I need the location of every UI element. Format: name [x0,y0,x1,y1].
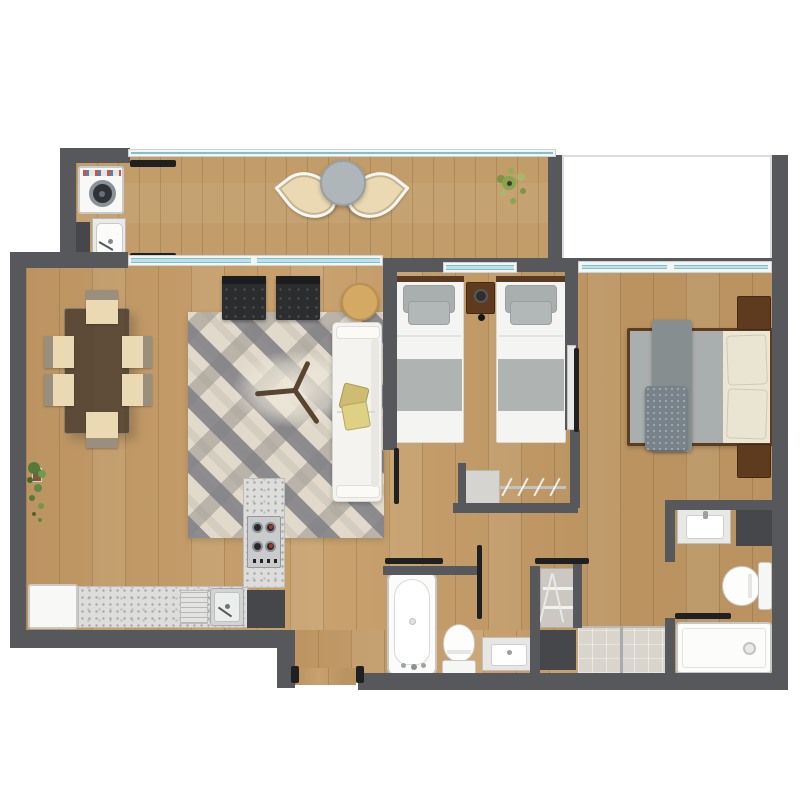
coffee-table [293,388,297,392]
bathroom-door-track [477,545,482,619]
dining-chair [86,290,118,324]
bedroom1-door-track [394,448,399,504]
bed-pillow [726,334,768,385]
textured-throw [645,386,687,450]
shower-tray [676,622,772,674]
wall-ensuite-top [665,500,772,510]
closet-slider-track [535,558,589,564]
shower-door-track [675,613,731,619]
linen-closet [540,568,576,628]
upper-terrace [562,155,772,265]
ensuite-vanity [677,508,731,544]
wall-kitchen-bottom [10,630,285,648]
tub-faucet [401,663,406,668]
kitchen-dark-cabinet [247,590,285,628]
tub-faucet [411,664,417,670]
wall-closet-right [573,560,582,628]
balcony-door-track [130,160,176,167]
lamp [474,289,488,303]
wall-right-outer [772,155,788,690]
bedroom1-window [443,262,517,273]
round-side-table [341,283,379,321]
washing-machine [78,166,124,214]
plant [30,466,44,480]
bistro-table [320,160,366,206]
entry-floor [295,668,356,685]
wall-bath-right [530,566,540,673]
refrigerator [28,584,78,629]
entry-door-post [291,666,299,683]
vanity-sink [482,637,534,671]
wall-ensuite-left-lower [665,618,675,673]
cooktop [247,516,281,568]
toilet [441,624,477,676]
wall-utility-left [60,148,76,263]
faucet [703,511,708,519]
shower-drain [743,642,756,655]
master-door-track [574,348,579,432]
faucet [108,239,113,244]
dining-chair [122,374,152,406]
wall-ensuite-left-upper [665,510,675,562]
wall-bed1-bottom [453,503,578,513]
shower-glass-divider [620,626,623,673]
wall-bed1-left [383,258,397,450]
closet-cabinet [540,630,576,670]
wall-left-outer [10,252,26,648]
ensuite-toilet [722,562,772,610]
nightstand-with-lamp [466,282,495,314]
faucet [507,650,512,655]
tiled-shower-area [578,626,668,673]
single-bed [394,276,464,443]
living-window-wall [128,255,383,266]
wall-hall-master [570,430,580,508]
wall-left-connector [10,252,128,268]
wall-bottom-outer [358,673,772,690]
ensuite-cabinet [736,506,772,546]
dining-chair [44,336,74,368]
closet-shelf-unit [464,470,500,504]
balcony-plant [498,162,512,176]
nightstand [737,444,771,478]
throw-pillow [341,401,371,431]
dining-chair [86,412,118,448]
kitchen-drainboard [180,590,208,624]
kitchen-sink [210,588,244,626]
wall-bath-top [383,566,479,575]
dining-chair [122,336,152,368]
bathtub [387,572,437,676]
master-window [578,261,772,273]
bed-pillow [726,388,768,439]
nightstand [737,296,771,330]
sofa [332,322,382,502]
dining-chair [44,374,74,406]
single-bed [496,276,566,443]
wall-balcony-end [548,155,562,263]
faucet [225,604,230,609]
balcony-railing [128,149,556,157]
entry-door-post [356,666,364,683]
floor-plan-canvas [0,0,800,800]
wall-closet-divider [458,463,466,508]
tub-faucet [421,663,426,668]
bathroom-slider-track [385,558,443,564]
armchair [276,276,320,320]
armchair [222,276,266,320]
